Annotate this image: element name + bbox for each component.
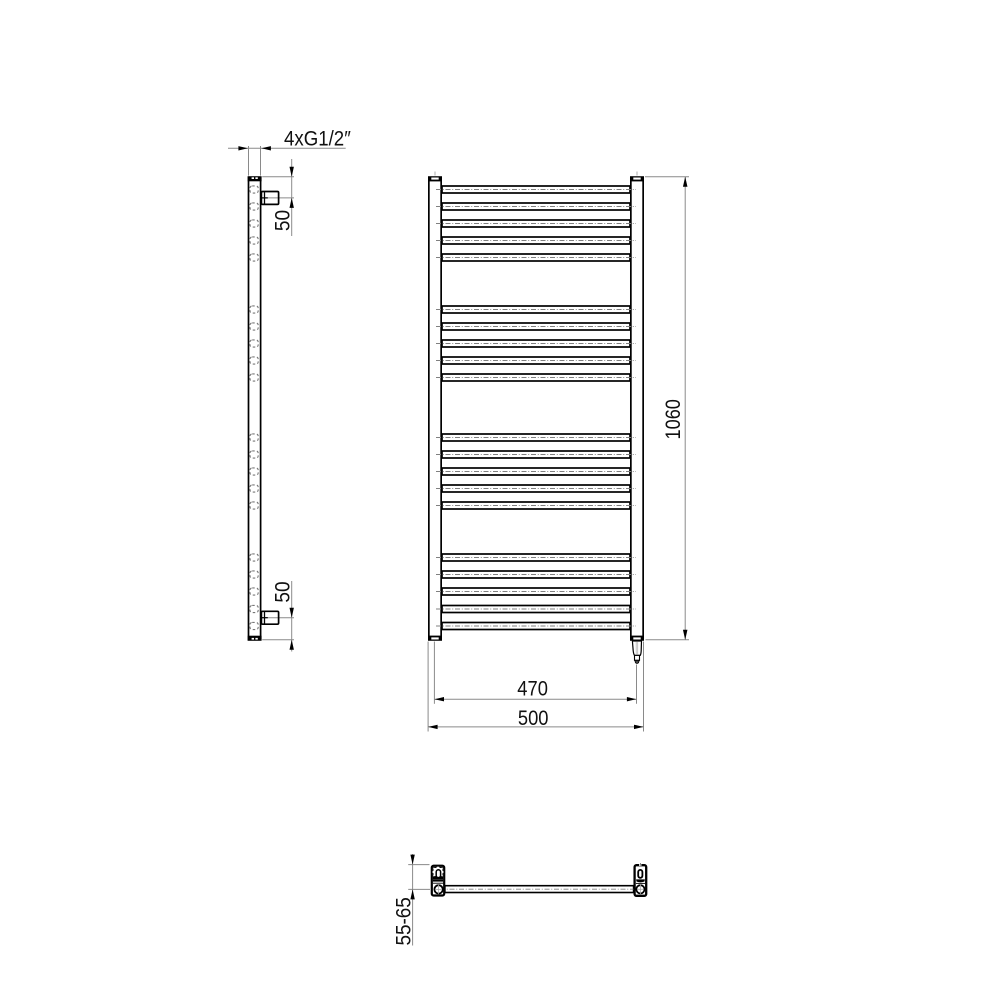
svg-text:50: 50 (271, 581, 294, 602)
svg-text:470: 470 (517, 678, 548, 701)
svg-text:50: 50 (271, 210, 294, 231)
svg-text:1060: 1060 (662, 399, 685, 439)
svg-text:4xG1/2″: 4xG1/2″ (284, 127, 351, 150)
svg-text:55-65: 55-65 (392, 897, 415, 945)
svg-text:500: 500 (518, 707, 549, 730)
